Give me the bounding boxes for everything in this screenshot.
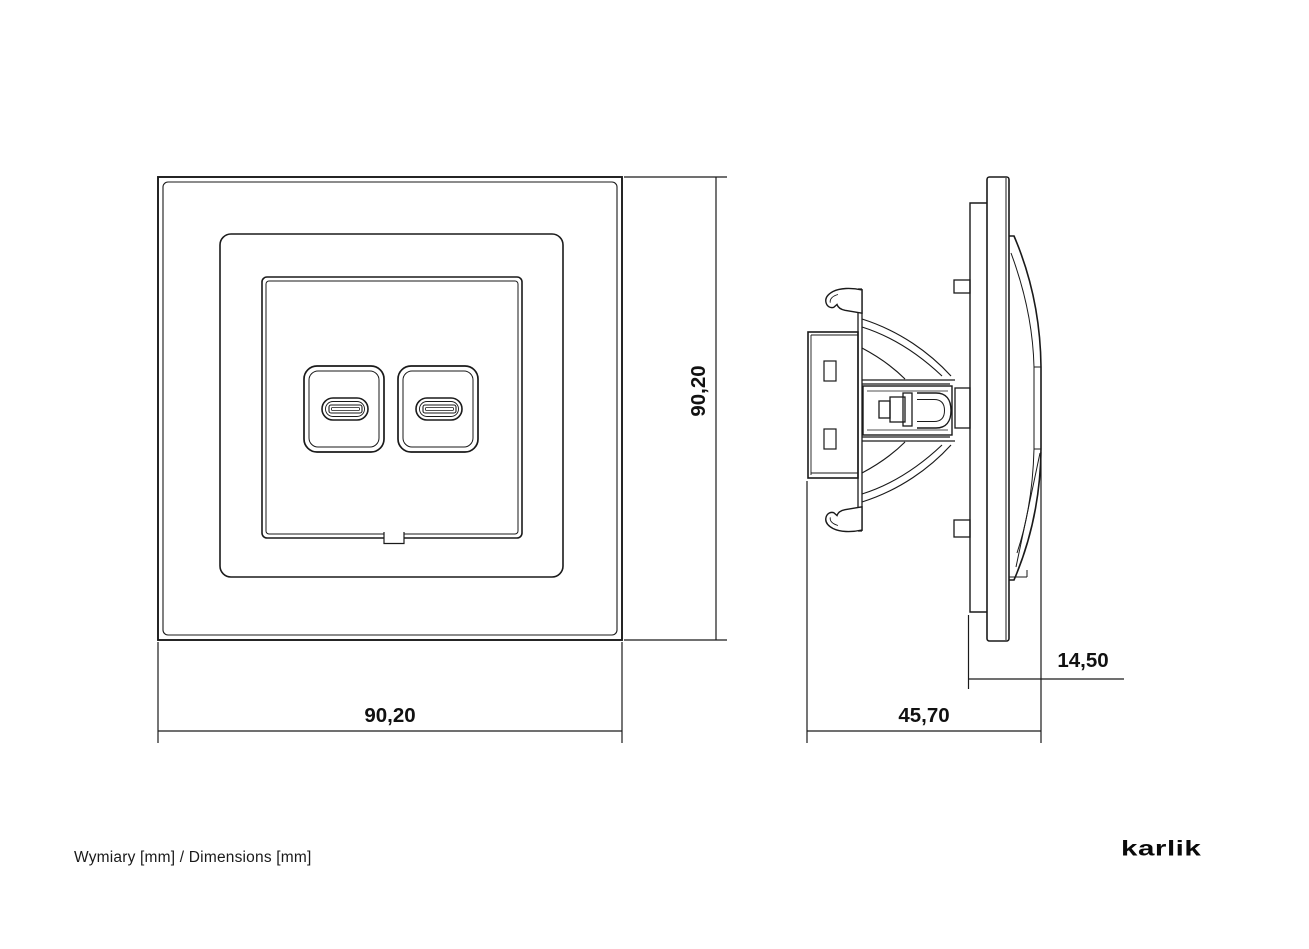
- dim-label-side-protrusion: 14,50: [1057, 649, 1108, 672]
- usb-c-tongue: [423, 405, 456, 413]
- side-view: [808, 177, 1041, 641]
- usb-port-bezel-outer: [304, 366, 384, 452]
- claw-bottom: [826, 507, 862, 532]
- plate-bottom-bevel: [1009, 453, 1040, 577]
- plate-curve-inner: [1011, 253, 1034, 553]
- terminal-hole-bottom: [824, 429, 836, 449]
- rear-box-inner-lines: [811, 335, 858, 475]
- screw-head: [879, 401, 890, 418]
- screw-guide-outer: [917, 393, 951, 428]
- usb-c-tongue: [329, 405, 362, 413]
- usb-c-port-right: [398, 366, 478, 452]
- frame-opening: [220, 234, 563, 577]
- dim-label-front-height: 90,20: [687, 365, 710, 416]
- mounting-yoke: [970, 203, 987, 612]
- front-plate-outer-edge: [158, 177, 622, 640]
- yoke-lug-top: [954, 280, 970, 293]
- yoke-lug-bottom: [954, 520, 970, 537]
- dim-label-side-depth: 45,70: [898, 704, 949, 727]
- module-outer: [262, 277, 522, 538]
- karlik-brand-logo: karlik: [1121, 837, 1201, 861]
- terminal-hole-top: [824, 361, 836, 381]
- technical-drawing: 90,20 90,20 45,70 14,50: [0, 0, 1309, 949]
- drawing-caption: Wymiary [mm] / Dimensions [mm]: [74, 849, 312, 867]
- rear-box: [808, 332, 858, 478]
- screw-guide-inner: [917, 400, 945, 422]
- screw-plate: [903, 393, 912, 426]
- front-plate-inner-edge: [163, 182, 617, 635]
- usb-c-tongue-inner: [426, 408, 454, 411]
- spring-arms-lower: [862, 437, 955, 502]
- dim-front-height: 90,20: [624, 177, 727, 640]
- usb-c-tongue-inner: [332, 408, 360, 411]
- front-view: [158, 177, 622, 640]
- yoke-lug-middle: [955, 388, 970, 428]
- module-notch-mask: [384, 531, 404, 543]
- dim-side-protrusion: 14,50: [969, 615, 1125, 689]
- plate-flat-face-ticks: [1034, 367, 1041, 449]
- plate-curve-outer: [1009, 236, 1041, 580]
- dimension-drawing-page: 90,20 90,20 45,70 14,50: [0, 0, 1309, 949]
- usb-c-port-left: [304, 366, 384, 452]
- dimensions: 90,20 90,20 45,70 14,50: [158, 177, 1124, 743]
- dim-label-front-width: 90,20: [364, 704, 415, 727]
- spring-arms-upper: [862, 319, 955, 384]
- dim-front-width: 90,20: [158, 642, 622, 743]
- usb-port-bezel-outer: [398, 366, 478, 452]
- claw-top: [826, 288, 862, 313]
